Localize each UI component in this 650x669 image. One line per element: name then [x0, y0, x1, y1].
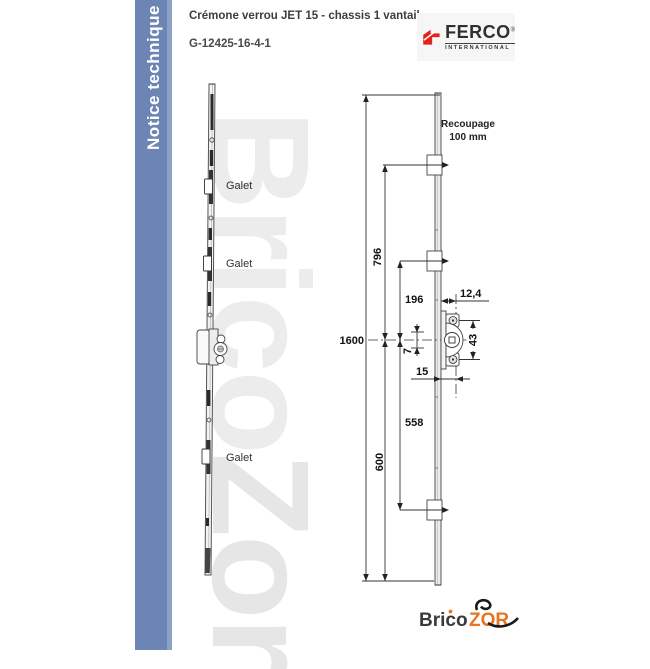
dim-1600: 1600	[340, 335, 364, 347]
dim-43: 43	[468, 334, 480, 346]
spindle-hub	[445, 333, 460, 348]
galet-label-1: Galet	[226, 180, 252, 192]
dim-558: 558	[405, 417, 423, 429]
roller-2	[204, 256, 212, 271]
ferco-logo: FERCO® INTERNATIONAL	[417, 13, 515, 61]
recoupage-note-line2: 100 mm	[449, 132, 486, 143]
ferco-flag-icon	[421, 24, 441, 51]
dim-796: 796	[372, 248, 384, 266]
dim-7: 7	[402, 348, 414, 354]
ferco-subtitle: INTERNATIONAL	[445, 43, 515, 51]
roller-1	[205, 179, 213, 194]
gearbox-housing-left-view	[197, 329, 227, 365]
gearbox-housing-dimension-view	[441, 311, 463, 369]
bricozor-part2: ZOR	[469, 610, 509, 631]
ferco-name: FERCO	[445, 22, 511, 42]
right-dimension-drawing: 1600 796 600 196 558 12,4 43 7	[340, 85, 540, 597]
recoupage-note-line1: Recoupage	[441, 119, 495, 130]
dim-600: 600	[374, 453, 386, 471]
roller-3	[202, 449, 210, 464]
dim-15: 15	[416, 366, 428, 378]
page-title: Crémone verrou JET 15 - chassis 1 vantai…	[189, 10, 420, 22]
notice-side-label-wrap: Notice technique	[135, 2, 172, 152]
bricozor-logo: Brico ZOR	[417, 598, 522, 638]
product-reference: G-12425-16-4-1	[189, 38, 271, 50]
dim-12-4: 12,4	[460, 288, 482, 300]
ferco-wordmark: FERCO® INTERNATIONAL	[445, 23, 515, 51]
galet-label-2: Galet	[226, 258, 252, 270]
galet-label-3: Galet	[226, 452, 252, 464]
bricozor-i-dot	[449, 610, 453, 614]
bricozor-swoosh-loop	[476, 600, 490, 610]
bricozor-part1: Brico	[419, 610, 468, 631]
dim-196: 196	[405, 294, 423, 306]
notice-technique-label: Notice technique	[144, 5, 164, 150]
left-technical-drawing: Galet Galet Galet	[178, 75, 310, 590]
registered-mark: ®	[511, 28, 515, 34]
